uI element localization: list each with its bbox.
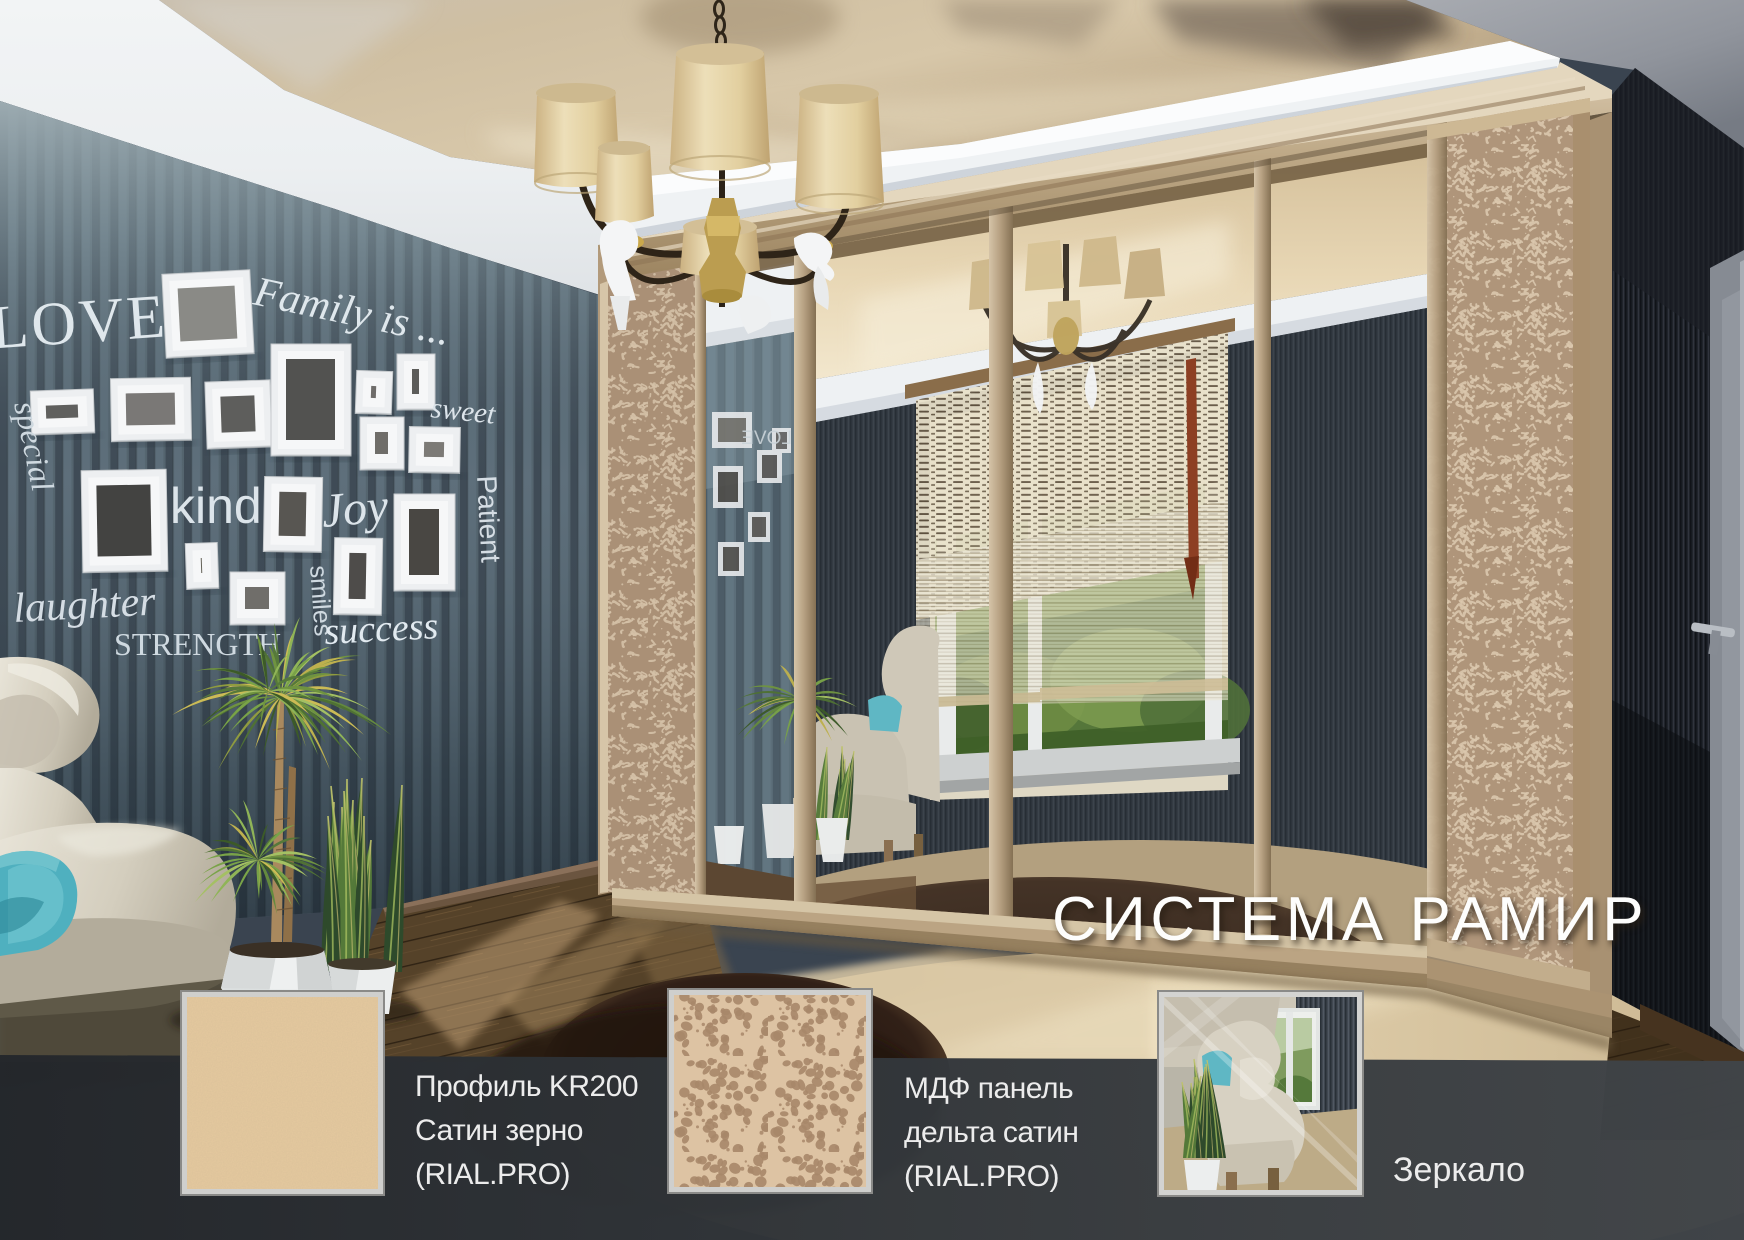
svg-text:LOVE: LOVE (741, 428, 792, 449)
svg-text:дельта сатин: дельта сатин (904, 1116, 1079, 1149)
svg-text:STRENGTH: STRENGTH (114, 626, 281, 662)
svg-text:Профиль KR200: Профиль KR200 (415, 1070, 638, 1103)
svg-text:LOVE: LOVE (0, 282, 170, 362)
svg-text:sweet: sweet (429, 392, 497, 431)
svg-text:Patient: Patient (471, 475, 507, 564)
svg-text:СИСТЕМА РАМИР: СИСТЕМА РАМИР (1052, 885, 1648, 954)
svg-text:МДФ панель: МДФ панель (904, 1072, 1073, 1105)
svg-text:success: success (323, 605, 439, 653)
svg-text:laughter: laughter (12, 579, 157, 632)
svg-text:Сатин зерно: Сатин зерно (415, 1114, 583, 1147)
svg-text:(RIAL.PRO): (RIAL.PRO) (415, 1158, 570, 1191)
svg-text:(RIAL.PRO): (RIAL.PRO) (904, 1160, 1059, 1193)
svg-text:Зеркало: Зеркало (1393, 1151, 1525, 1189)
svg-text:kind: kind (170, 478, 262, 534)
svg-text:Joy: Joy (319, 479, 391, 538)
